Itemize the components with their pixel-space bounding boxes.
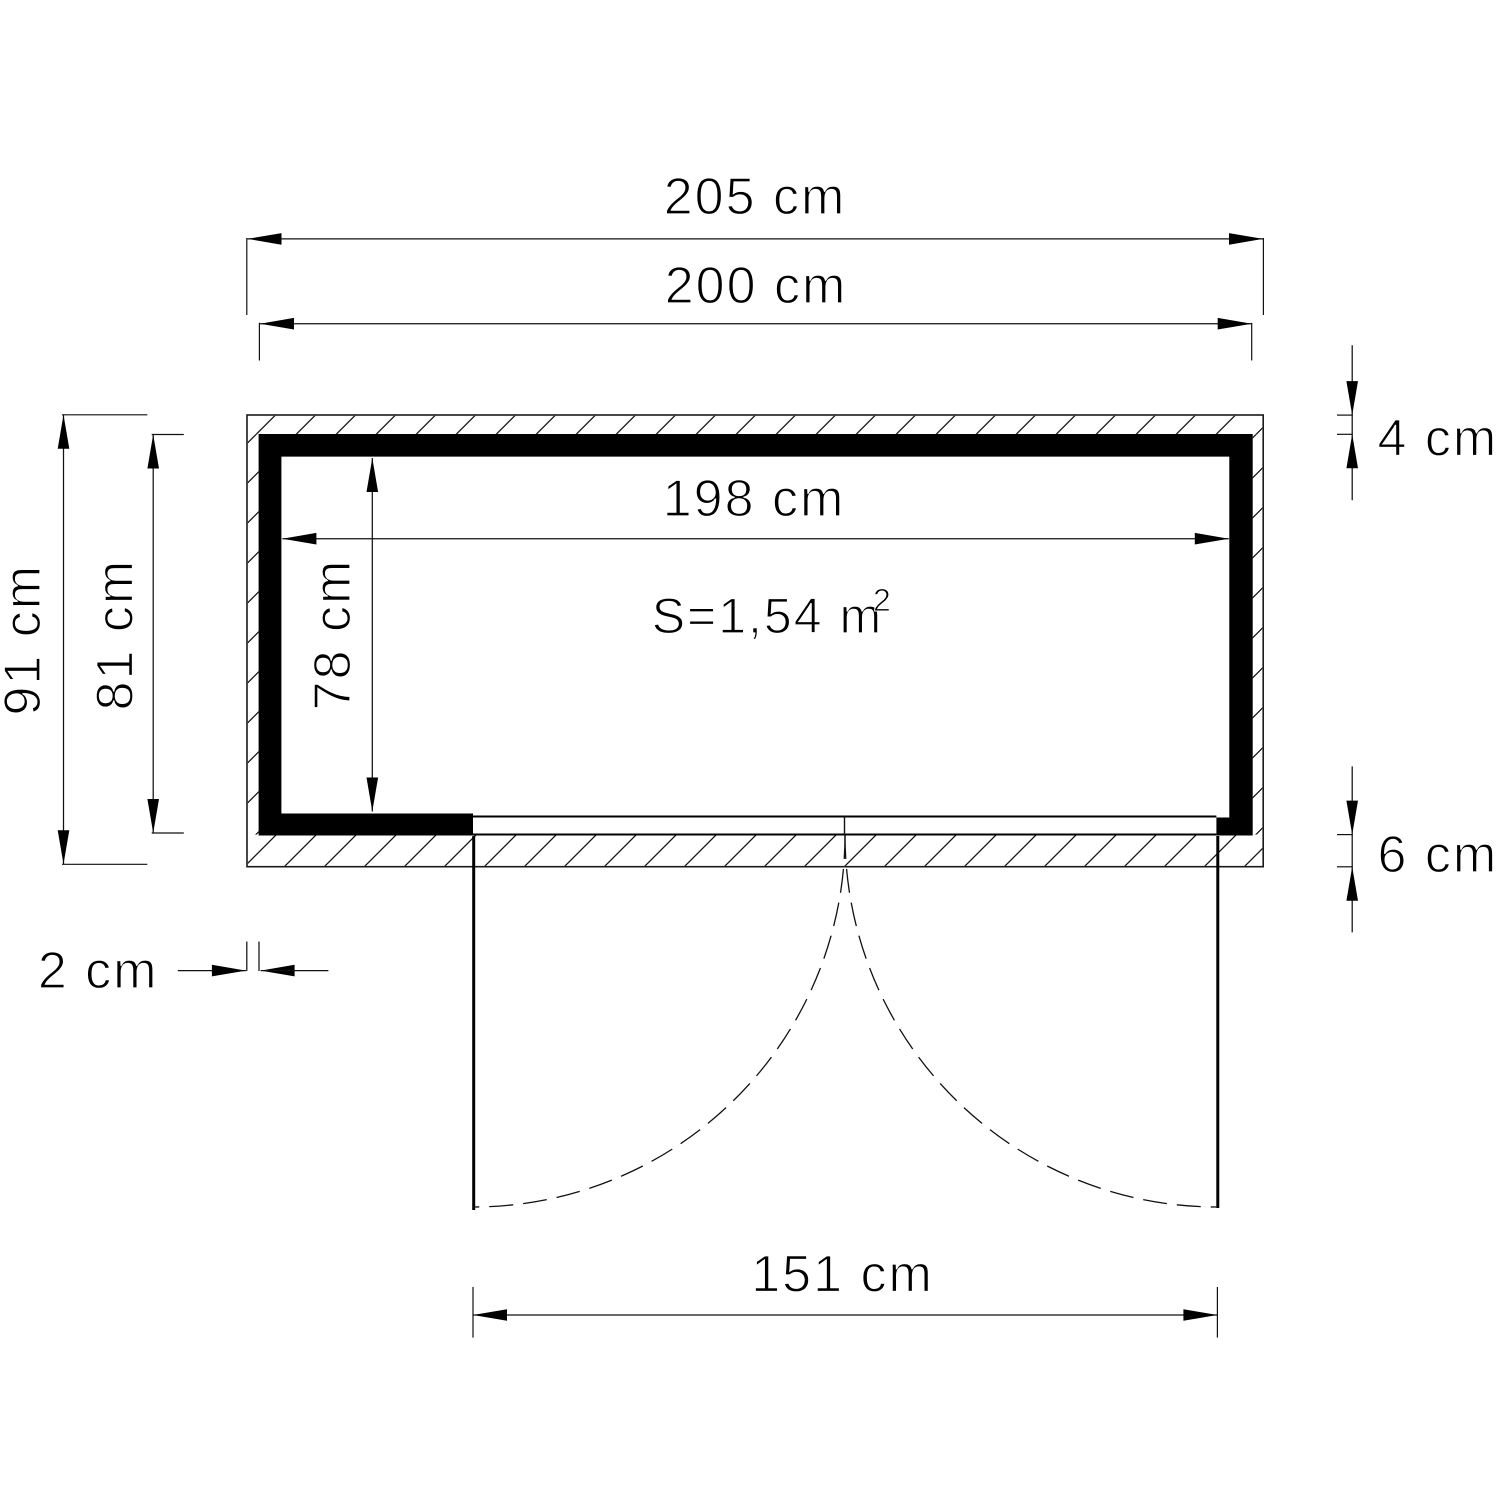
svg-text:S=1,54 m: S=1,54 m — [652, 588, 883, 644]
svg-text:2 cm: 2 cm — [38, 942, 159, 1000]
svg-text:200 cm: 200 cm — [665, 257, 848, 315]
svg-text:81 cm: 81 cm — [87, 559, 145, 711]
svg-text:78 cm: 78 cm — [304, 559, 362, 711]
svg-text:91 cm: 91 cm — [0, 564, 52, 716]
svg-text:151 cm: 151 cm — [751, 1246, 934, 1304]
svg-text:198 cm: 198 cm — [663, 470, 846, 528]
svg-text:4 cm: 4 cm — [1378, 410, 1499, 468]
svg-text:205 cm: 205 cm — [664, 168, 847, 226]
svg-text:6 cm: 6 cm — [1378, 826, 1499, 884]
